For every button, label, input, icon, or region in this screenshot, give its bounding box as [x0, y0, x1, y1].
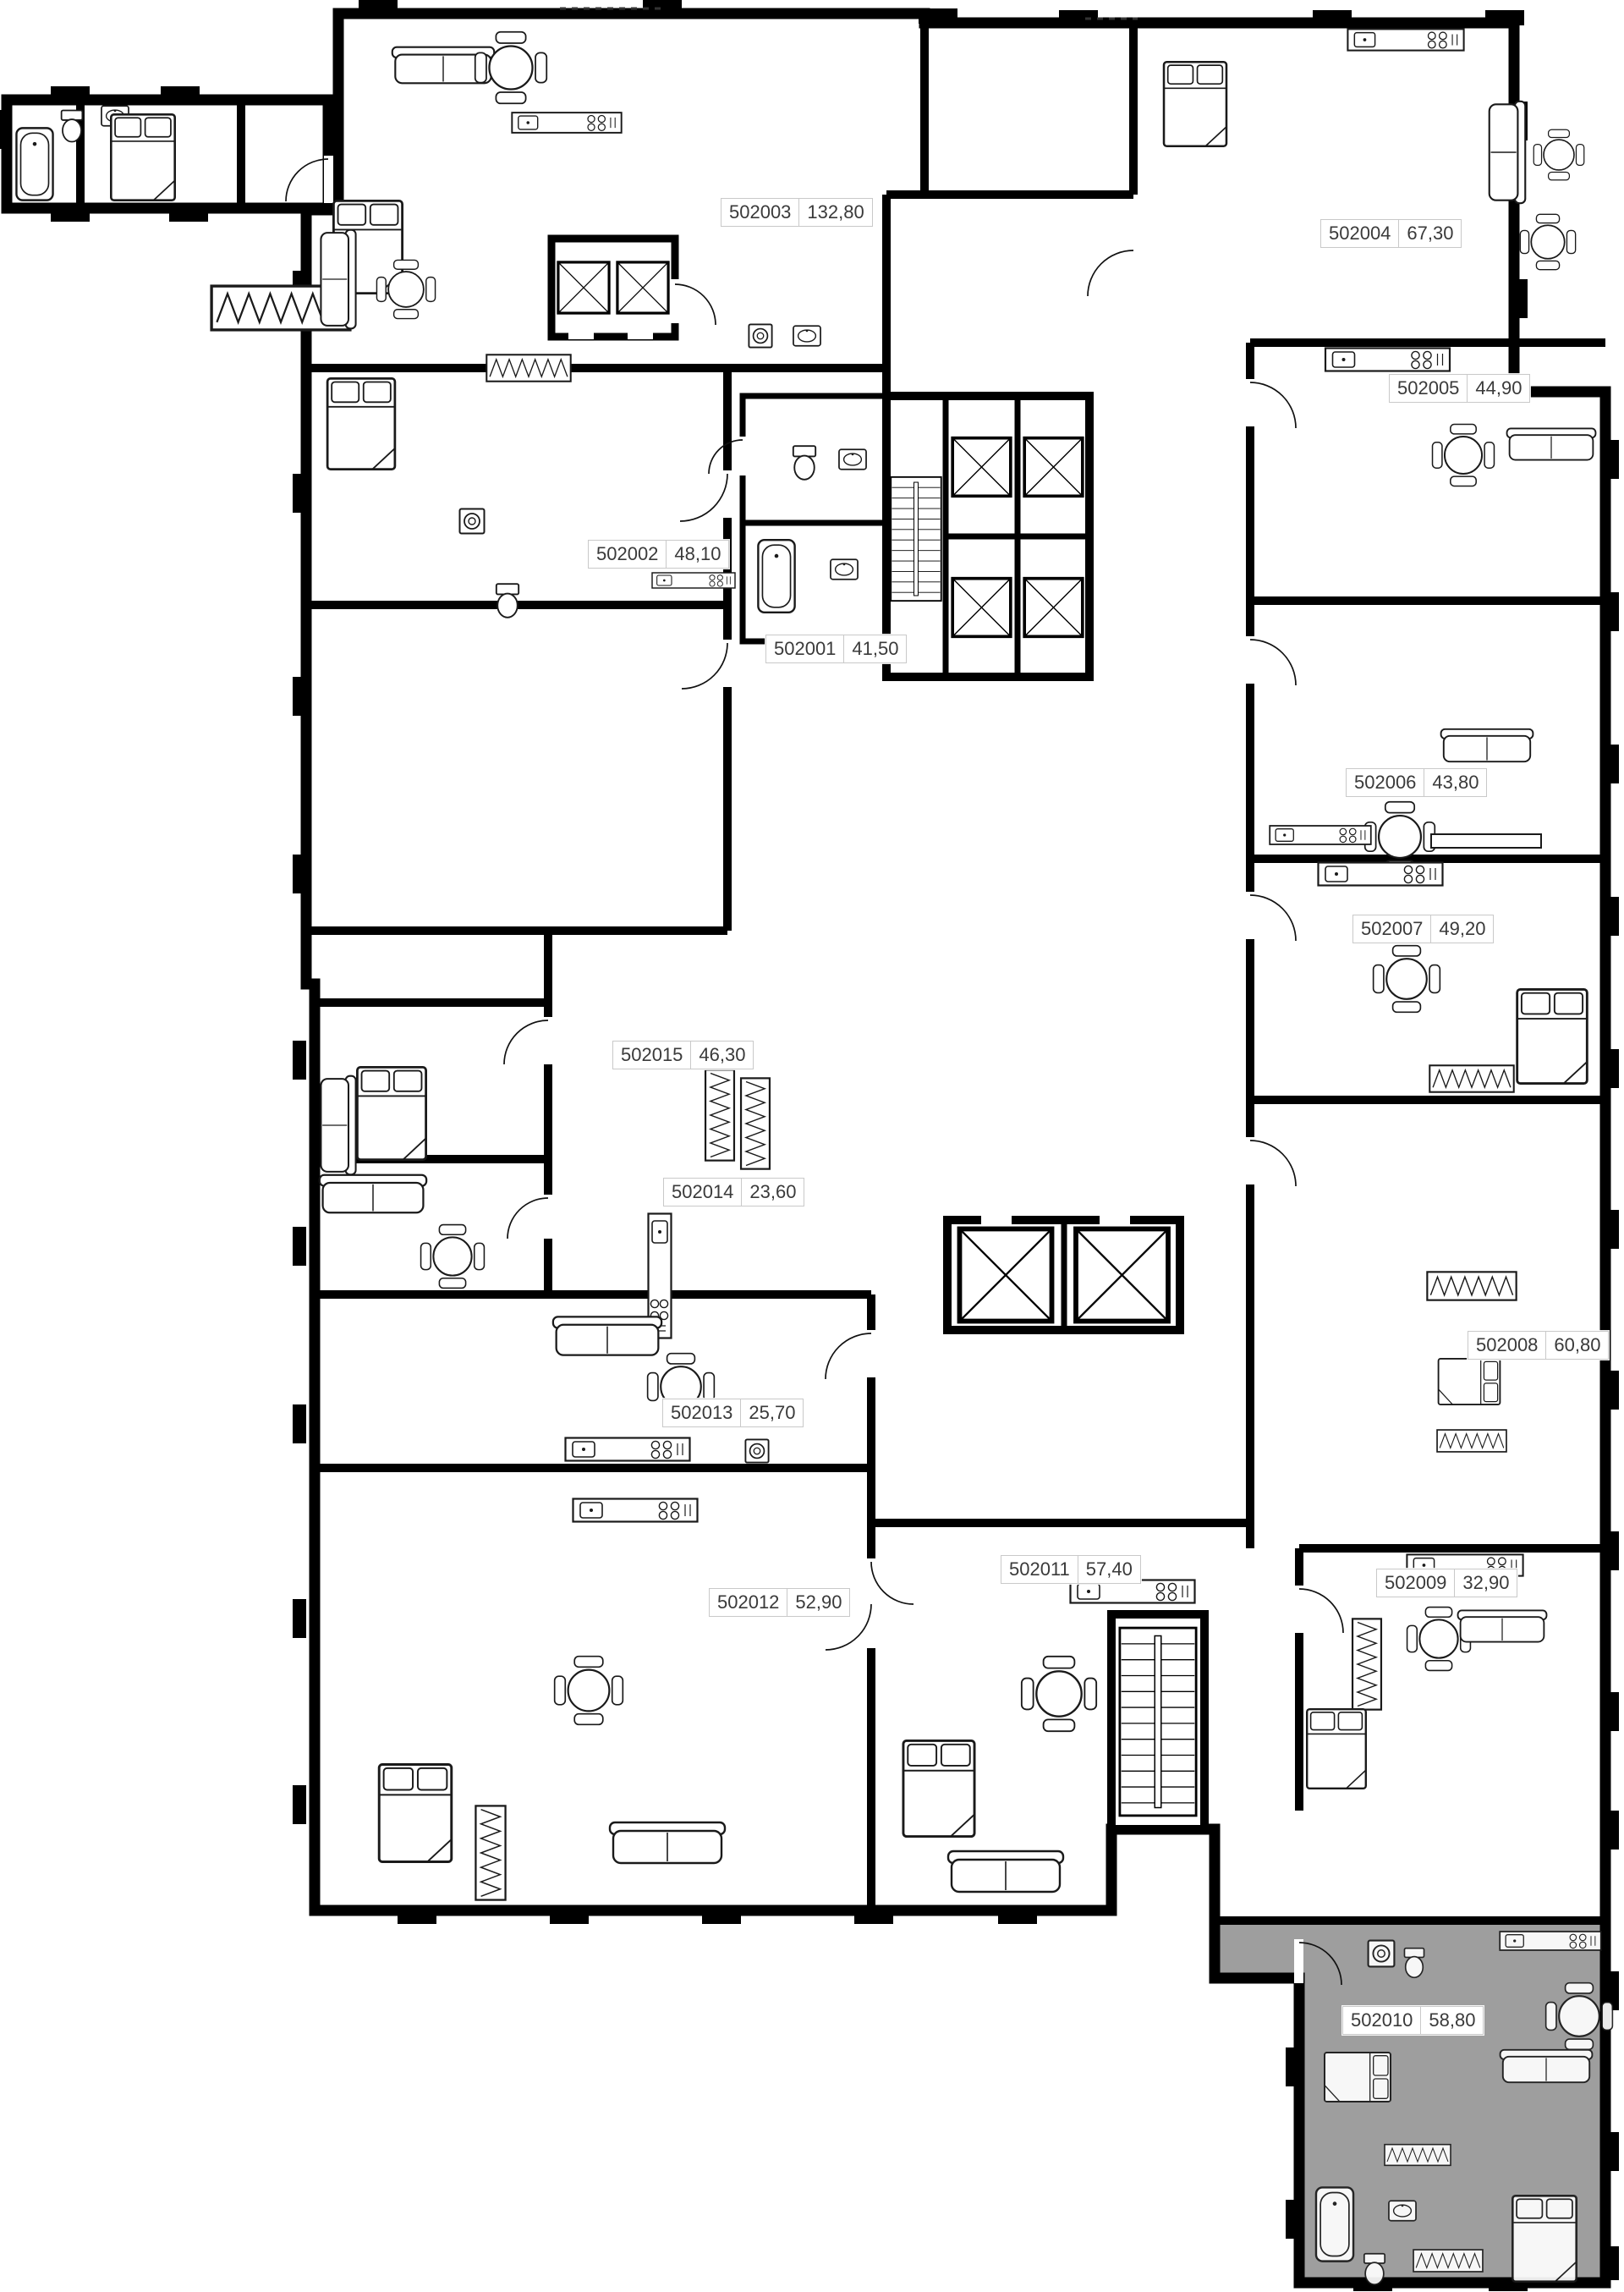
unit-label-502011[interactable]: 502011 57,40	[1001, 1555, 1141, 1584]
wardrobe-icon	[1437, 1430, 1506, 1452]
unit-number: 502007	[1353, 915, 1431, 943]
sofa-icon	[610, 1822, 725, 1863]
unit-label-502010[interactable]: 502010 58,80	[1342, 2006, 1484, 2035]
toilet-icon	[62, 110, 83, 141]
unit-label-502006[interactable]: 502006 43,80	[1346, 768, 1487, 797]
unit-label-502003[interactable]: 502003 132,80	[721, 198, 873, 227]
staircase	[891, 477, 941, 601]
sofa-icon	[1507, 428, 1596, 459]
unit-area: 41,50	[844, 635, 906, 663]
unit-area: 52,90	[787, 1588, 849, 1617]
unit-area: 67,30	[1399, 219, 1461, 248]
kitchen-counter-icon	[512, 113, 621, 133]
washing-machine-icon	[745, 1439, 768, 1462]
unit-number: 502002	[589, 540, 667, 569]
unit-area: 58,80	[1421, 2006, 1483, 2035]
unit-label-502012[interactable]: 502012 52,90	[709, 1588, 850, 1617]
kitchen-counter-icon	[1325, 349, 1450, 371]
wardrobe-icon	[741, 1078, 770, 1168]
unit-label-502015[interactable]: 502015 46,30	[612, 1041, 754, 1069]
unit-number: 502003	[721, 198, 799, 227]
unit-area: 44,90	[1468, 374, 1529, 403]
wardrobe-icon	[1427, 1272, 1516, 1300]
unit-area: 32,90	[1455, 1569, 1517, 1597]
sofa-icon	[321, 1076, 355, 1175]
sofa-icon	[1458, 1610, 1547, 1641]
unit-number: 502011	[1001, 1555, 1078, 1584]
kitchen-counter-icon	[652, 573, 735, 588]
sofa-icon	[553, 1316, 661, 1355]
unit-number: 502006	[1347, 768, 1424, 797]
bed-icon	[1325, 2053, 1391, 2102]
coffee-table-icon	[1533, 129, 1584, 180]
bed-icon	[327, 378, 395, 469]
elevator-shaft	[1024, 579, 1083, 637]
unit-number: 502015	[613, 1041, 691, 1069]
unit-number: 502005	[1390, 374, 1468, 403]
bed-icon	[379, 1764, 452, 1861]
kitchen-counter-icon	[573, 1499, 698, 1522]
staircase	[1120, 1628, 1196, 1816]
floor-plan-drawing	[0, 0, 1624, 2292]
unit-number: 502013	[663, 1399, 741, 1427]
unit-area: 23,60	[742, 1178, 804, 1206]
unit-number: 502001	[766, 635, 844, 663]
elevator-shaft	[558, 262, 609, 313]
unit-label-502013[interactable]: 502013 25,70	[662, 1399, 804, 1427]
staircase-block	[1111, 1614, 1204, 1829]
wardrobe-icon	[1385, 2145, 1451, 2166]
sofa-icon	[320, 1175, 426, 1213]
elevator-shaft	[952, 438, 1011, 497]
sofa-icon	[1490, 102, 1526, 203]
sink-icon	[793, 326, 820, 345]
unit-number: 502009	[1377, 1569, 1455, 1597]
kitchen-counter-icon	[1347, 29, 1463, 50]
wardrobe-icon	[486, 355, 570, 381]
sink-icon	[831, 559, 858, 579]
bathtub-icon	[1316, 2187, 1353, 2261]
unit-area: 25,70	[741, 1399, 803, 1427]
kitchen-counter-icon	[566, 1438, 690, 1461]
bed-icon	[1307, 1709, 1366, 1789]
unit-number: 502004	[1321, 219, 1399, 248]
unit-label-502005[interactable]: 502005 44,90	[1389, 374, 1530, 403]
unit-number: 502008	[1468, 1331, 1546, 1360]
wardrobe-icon	[1413, 2250, 1483, 2272]
unit-area: 48,10	[667, 540, 728, 569]
unit-label-502004[interactable]: 502004 67,30	[1320, 219, 1462, 248]
elevator-shaft	[617, 262, 668, 313]
unit-area: 57,40	[1078, 1555, 1140, 1584]
unit-label-502002[interactable]: 502002 48,10	[588, 540, 729, 569]
kitchen-counter-icon	[1319, 863, 1443, 886]
unit-number: 502012	[710, 1588, 787, 1617]
kitchen-counter-icon	[1500, 1932, 1601, 1950]
wardrobe-icon	[475, 1806, 505, 1899]
unit-label-502008[interactable]: 502008 60,80	[1468, 1331, 1609, 1360]
bed-icon	[1512, 2196, 1576, 2281]
toilet-icon	[1404, 1948, 1424, 1978]
washing-machine-icon	[460, 509, 485, 534]
sink-icon	[1389, 2201, 1416, 2220]
unit-area: 60,80	[1546, 1331, 1608, 1360]
unit-area: 132,80	[799, 198, 871, 227]
unit-label-502014[interactable]: 502014 23,60	[663, 1178, 804, 1206]
bed-icon	[1439, 1359, 1501, 1404]
elevator-shaft	[959, 1228, 1051, 1321]
wardrobe-icon	[1352, 1619, 1381, 1709]
bed-icon	[357, 1067, 425, 1159]
dining-table-icon	[1520, 214, 1575, 269]
bed-icon	[903, 1740, 974, 1836]
unit-label-502009[interactable]: 502009 32,90	[1376, 1569, 1517, 1597]
bathtub-icon	[758, 540, 794, 613]
sofa-icon	[1441, 729, 1533, 761]
unit-area: 46,30	[691, 1041, 753, 1069]
sink-icon	[839, 449, 866, 469]
floor-plan: 502003 132,80 502004 67,30 502005 44,90 …	[0, 0, 1624, 2292]
washing-machine-icon	[1369, 1941, 1395, 1967]
sofa-icon	[1501, 2050, 1593, 2082]
unit-area: 49,20	[1431, 915, 1493, 943]
toilet-icon	[793, 446, 815, 480]
bed-icon	[1517, 989, 1588, 1083]
sofa-icon	[321, 230, 355, 329]
bed-icon	[111, 114, 174, 200]
unit-number: 502014	[664, 1178, 742, 1206]
kitchen-counter-icon	[1270, 826, 1371, 844]
sofa-icon	[948, 1851, 1063, 1892]
wardrobe-icon	[705, 1069, 734, 1160]
bed-icon	[1164, 62, 1226, 146]
elevator-shaft	[1076, 1228, 1168, 1321]
toilet-icon	[1364, 2254, 1385, 2285]
wardrobe-icon	[1429, 1065, 1513, 1091]
elevator-shaft	[1024, 438, 1083, 497]
toilet-icon	[497, 584, 518, 618]
elevator-shaft	[952, 579, 1011, 637]
washing-machine-icon	[749, 324, 771, 347]
unit-area: 43,80	[1424, 768, 1486, 797]
bathtub-icon	[16, 128, 52, 200]
unit-number: 502010	[1343, 2006, 1421, 2035]
unit-label-502007[interactable]: 502007 49,20	[1352, 915, 1494, 943]
tv-stand-icon	[1431, 834, 1541, 848]
unit-label-502001[interactable]: 502001 41,50	[765, 635, 907, 663]
